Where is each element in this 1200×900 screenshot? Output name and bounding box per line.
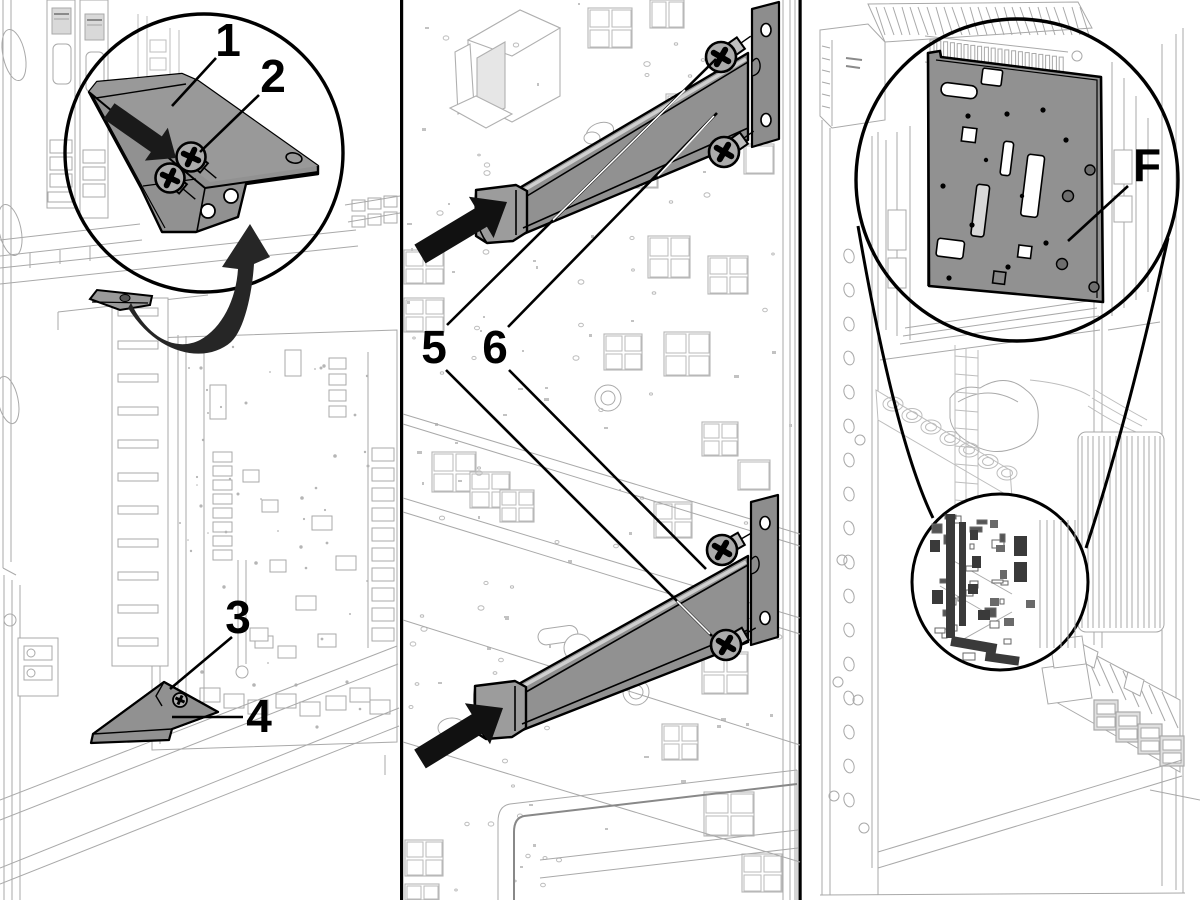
svg-text:4: 4 [246,690,272,742]
svg-text:F: F [1133,139,1161,191]
svg-text:2: 2 [260,50,286,102]
svg-text:1: 1 [215,14,241,66]
svg-text:6: 6 [482,321,508,373]
svg-text:5: 5 [421,321,447,373]
svg-text:3: 3 [225,591,251,643]
